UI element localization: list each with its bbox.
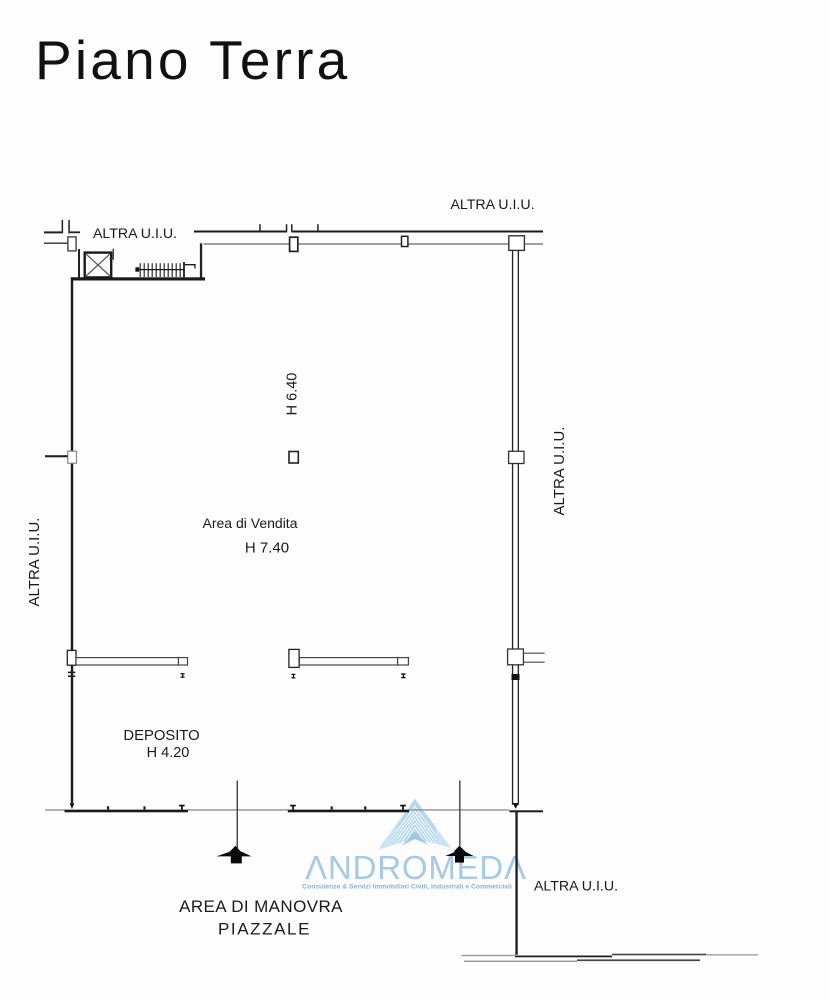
svg-text:ALTRA U.I.U.: ALTRA U.I.U.: [534, 879, 618, 895]
svg-text:Consulenze & Servizi Immobilia: Consulenze & Servizi Immobiliari Civili,…: [302, 884, 512, 891]
svg-text:ALTRA U.I.U.: ALTRA U.I.U.: [93, 226, 177, 242]
svg-text:ALTRA U.I.U.: ALTRA U.I.U.: [450, 197, 534, 213]
svg-text:H 4.20: H 4.20: [147, 745, 190, 761]
svg-text:ΛNDROMEDΛ: ΛNDROMEDΛ: [305, 849, 527, 886]
svg-text:PIAZZALE: PIAZZALE: [218, 920, 311, 939]
svg-text:H 7.40: H 7.40: [245, 540, 289, 557]
svg-text:Piano Terra: Piano Terra: [35, 29, 350, 91]
svg-text:ALTRA U.I.U.: ALTRA U.I.U.: [551, 427, 568, 516]
svg-text:ALTRA U.I.U.: ALTRA U.I.U.: [26, 518, 43, 607]
svg-text:DEPOSITO: DEPOSITO: [123, 728, 199, 744]
svg-text:AREA DI MANOVRA: AREA DI MANOVRA: [179, 897, 343, 916]
svg-text:Area di Vendita: Area di Vendita: [203, 515, 298, 531]
svg-text:H 6.40: H 6.40: [285, 373, 301, 416]
